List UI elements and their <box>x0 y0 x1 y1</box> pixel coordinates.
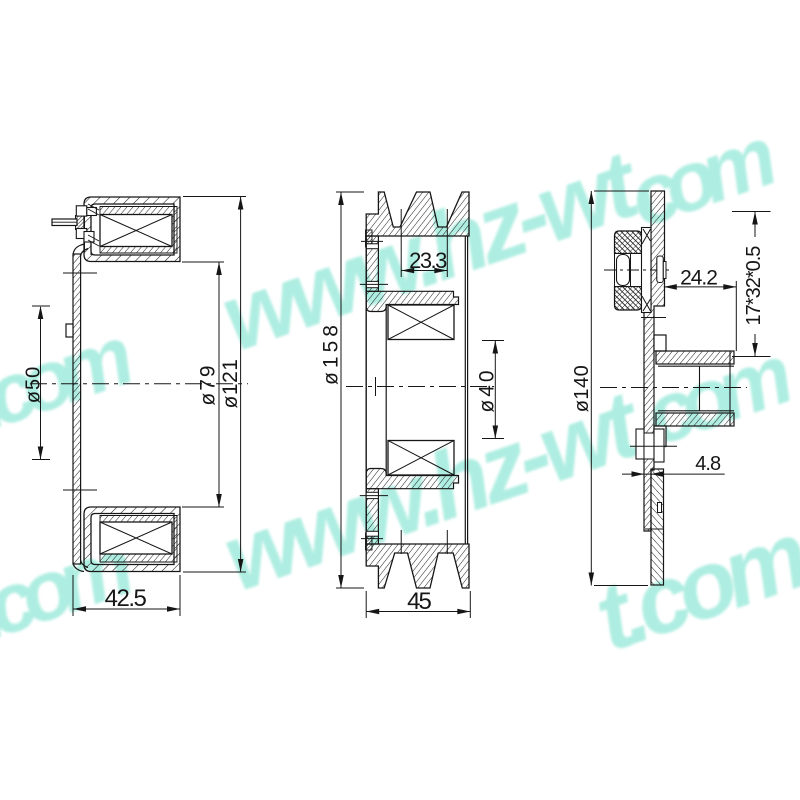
svg-text:24.2: 24.2 <box>680 267 717 290</box>
svg-text:ø40: ø40 <box>476 367 499 412</box>
svg-text:ø50: ø50 <box>23 366 45 403</box>
svg-text:17*32*0.5: 17*32*0.5 <box>743 246 765 326</box>
svg-text:23.3: 23.3 <box>409 248 447 273</box>
svg-text:ø79: ø79 <box>197 363 220 405</box>
svg-text:45: 45 <box>407 588 431 615</box>
svg-text:ø121: ø121 <box>219 359 242 409</box>
svg-text:42.5: 42.5 <box>105 585 147 612</box>
svg-text:ø140: ø140 <box>571 365 593 413</box>
svg-text:4.8: 4.8 <box>695 453 721 475</box>
svg-text:ø158: ø158 <box>320 321 343 385</box>
